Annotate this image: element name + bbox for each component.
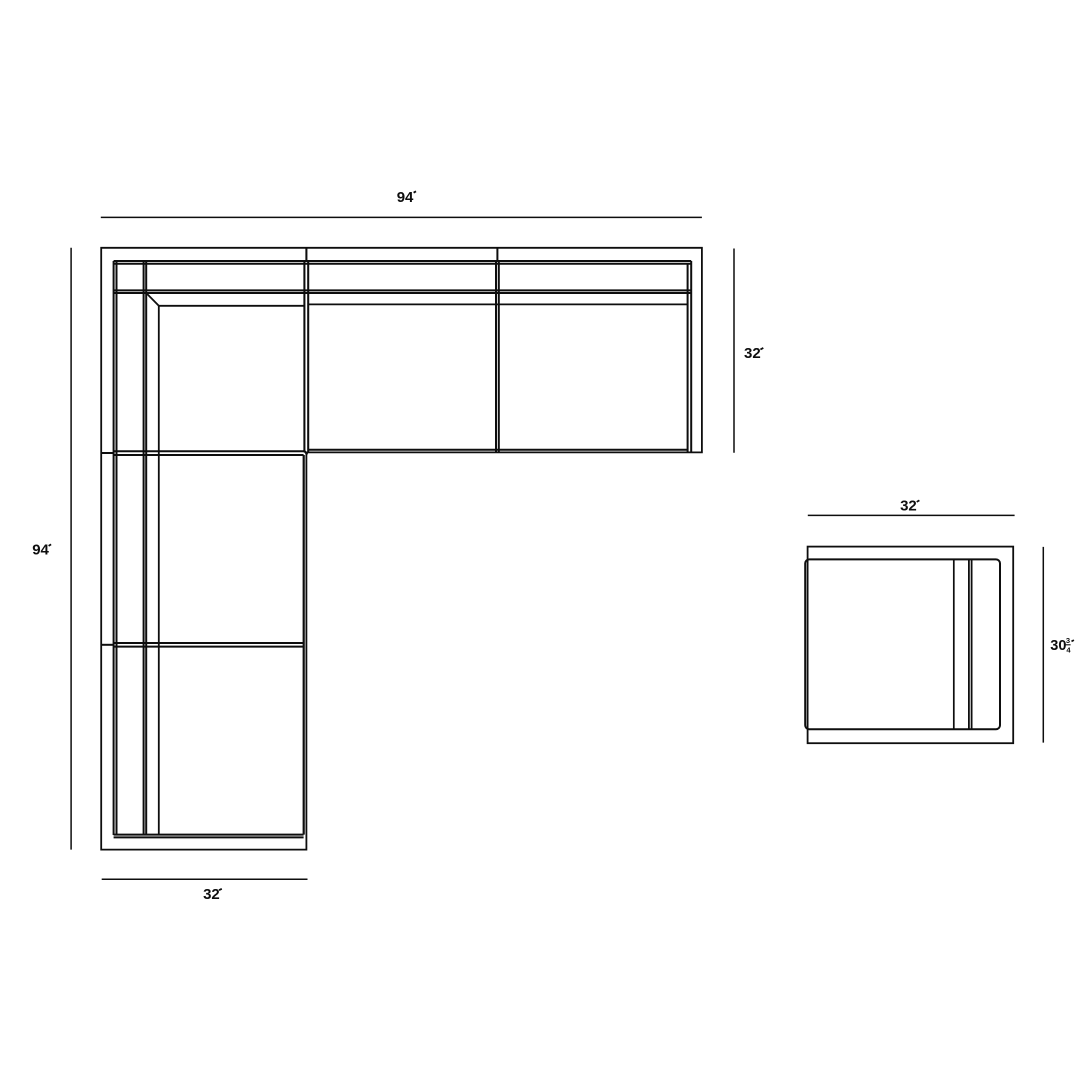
svg-text:32: 32 bbox=[203, 886, 220, 903]
svg-text:32: 32 bbox=[744, 345, 761, 362]
svg-text:32: 32 bbox=[900, 497, 917, 514]
svg-text:94: 94 bbox=[397, 189, 414, 206]
svg-text:30: 30 bbox=[1050, 638, 1066, 654]
svg-text:3: 3 bbox=[1066, 636, 1070, 645]
svg-text:94: 94 bbox=[32, 542, 49, 559]
svg-text:4: 4 bbox=[1066, 646, 1071, 655]
